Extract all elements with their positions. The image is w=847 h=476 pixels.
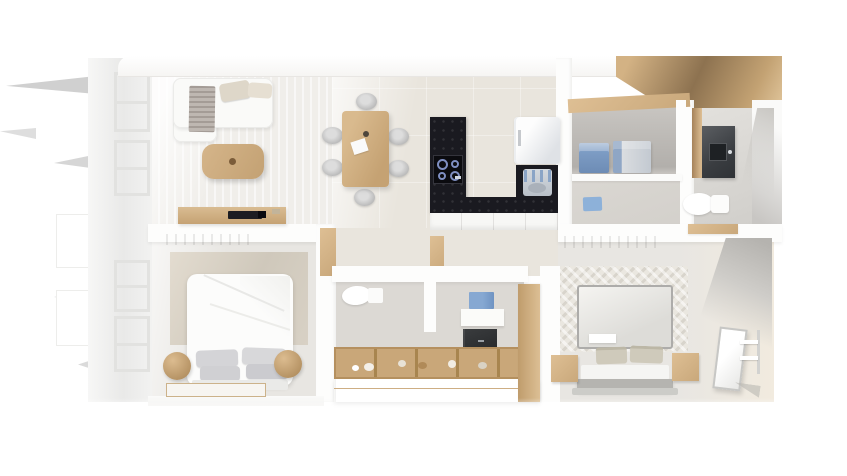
floor-plan-render [0,0,847,476]
cup [363,131,369,137]
sideboard-decor-item [272,209,280,214]
blue-wall-cabinet [469,292,494,309]
washer [579,143,609,173]
flat-tv [228,211,262,219]
wall-shelf [564,236,658,248]
vanity-faucet [728,150,732,154]
bed-side-tray [589,334,616,343]
window [114,260,150,312]
open-window-flap [6,76,96,94]
cooktop-burner [437,159,448,170]
throw-blanket [189,86,216,132]
cooktop-controls [455,176,461,179]
toilet-tank [368,288,383,303]
dining-chair [356,93,377,110]
cooktop-burner [438,172,446,180]
fridge-handle [518,130,521,146]
dining-chair [388,128,409,145]
dining-chair [354,189,375,206]
shelf-unit [740,330,760,374]
folded-clothes [478,362,487,369]
tv-soundbar [258,211,266,218]
bed-pillow [200,366,240,381]
folded-clothes [448,360,456,368]
sink-rack [524,170,551,182]
dining-chair [322,127,343,144]
dryer [613,141,651,173]
ensuite-divider-wall [424,266,436,332]
washbasin-counter [461,309,504,326]
laundry-niche-side [676,100,686,180]
sink-bowl [528,183,546,193]
wood-pouf [163,352,191,380]
shelf-board [740,340,758,344]
nightstand [672,353,699,381]
coffee-table-knob [229,158,236,165]
bed-pillow [630,345,664,363]
bed-pillow [196,349,239,367]
dining-chair [388,160,409,177]
bed-pillow [596,346,628,364]
bed-base-lip [572,388,678,395]
folded-clothes [418,362,427,369]
bottom-fade [88,398,788,416]
closet-side-wood-panel [518,284,540,402]
window [114,316,150,372]
folded-clothes [398,360,406,367]
bathroom-wood-bench [688,224,738,234]
laundry-shelf-lip [572,174,682,181]
cabinet-handle [478,340,484,342]
vanity-basin [709,143,727,161]
sofa-cushion [248,82,273,99]
open-window-flap [0,128,36,139]
sheet-band [581,365,669,380]
shelf-board [740,356,758,360]
window [114,72,150,132]
bordered-rug [166,383,266,397]
toilet-tank [711,195,729,213]
bathroom-door-jamb [692,108,702,178]
wood-pouf [274,350,302,378]
cooktop-burner [451,160,459,168]
nightstand [551,355,578,382]
blue-floor-mat [583,197,602,212]
window [114,140,150,196]
kitchen-base-cabinets [430,213,558,230]
cooktop [433,155,463,184]
folded-clothes [352,365,359,371]
folded-clothes [364,363,374,371]
wall-shelf [166,234,250,245]
dining-chair [322,159,343,176]
